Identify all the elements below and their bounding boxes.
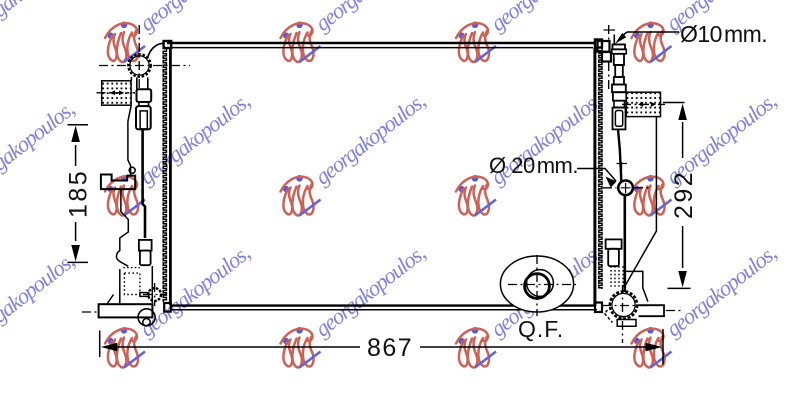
svg-text:Ø 20mm.: Ø 20mm.	[489, 153, 578, 178]
svg-text:Q.F.: Q.F.	[518, 316, 564, 342]
svg-text:292: 292	[670, 170, 698, 219]
svg-text:185: 185	[65, 169, 93, 218]
svg-text:Ø10mm.: Ø10mm.	[680, 21, 767, 47]
svg-text:867: 867	[367, 334, 413, 362]
